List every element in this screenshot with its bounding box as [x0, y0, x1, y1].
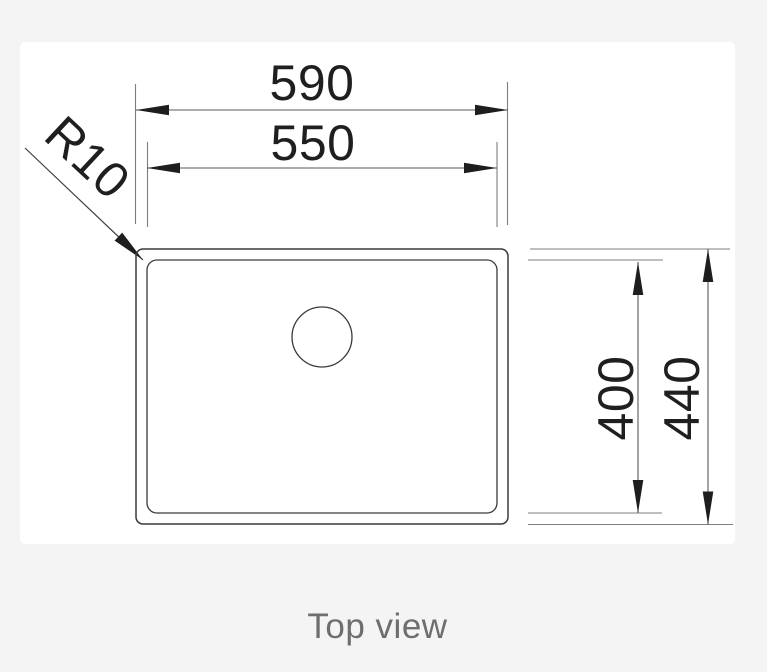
- arrowhead-590-right: [475, 105, 508, 116]
- arrowhead-400-top: [633, 262, 644, 295]
- arrowhead-550-left: [147, 163, 180, 174]
- sink-inner-outline: [147, 260, 497, 513]
- drawing-panel: 590 550 400 440 R10: [20, 42, 735, 544]
- sink-top-view-drawing: 590 550 400 440 R10: [20, 42, 735, 544]
- sink-outer-outline: [136, 249, 508, 524]
- arrowhead-440-bottom: [703, 492, 714, 525]
- dim-label-inner-width: 550: [271, 115, 356, 171]
- dim-label-corner-radius: R10: [34, 105, 140, 210]
- arrowhead-400-bottom: [633, 480, 644, 513]
- dim-label-outer-depth: 440: [654, 356, 710, 441]
- dim-label-outer-width: 590: [270, 55, 355, 111]
- arrowhead-550-right: [464, 163, 497, 174]
- drain-hole-circle: [292, 307, 352, 367]
- arrowhead-590-left: [136, 105, 169, 116]
- arrowhead-440-top: [703, 249, 714, 282]
- dim-label-inner-depth: 400: [588, 356, 644, 441]
- caption-top-view: Top view: [20, 606, 735, 648]
- arrowhead-radius-leader: [115, 233, 143, 260]
